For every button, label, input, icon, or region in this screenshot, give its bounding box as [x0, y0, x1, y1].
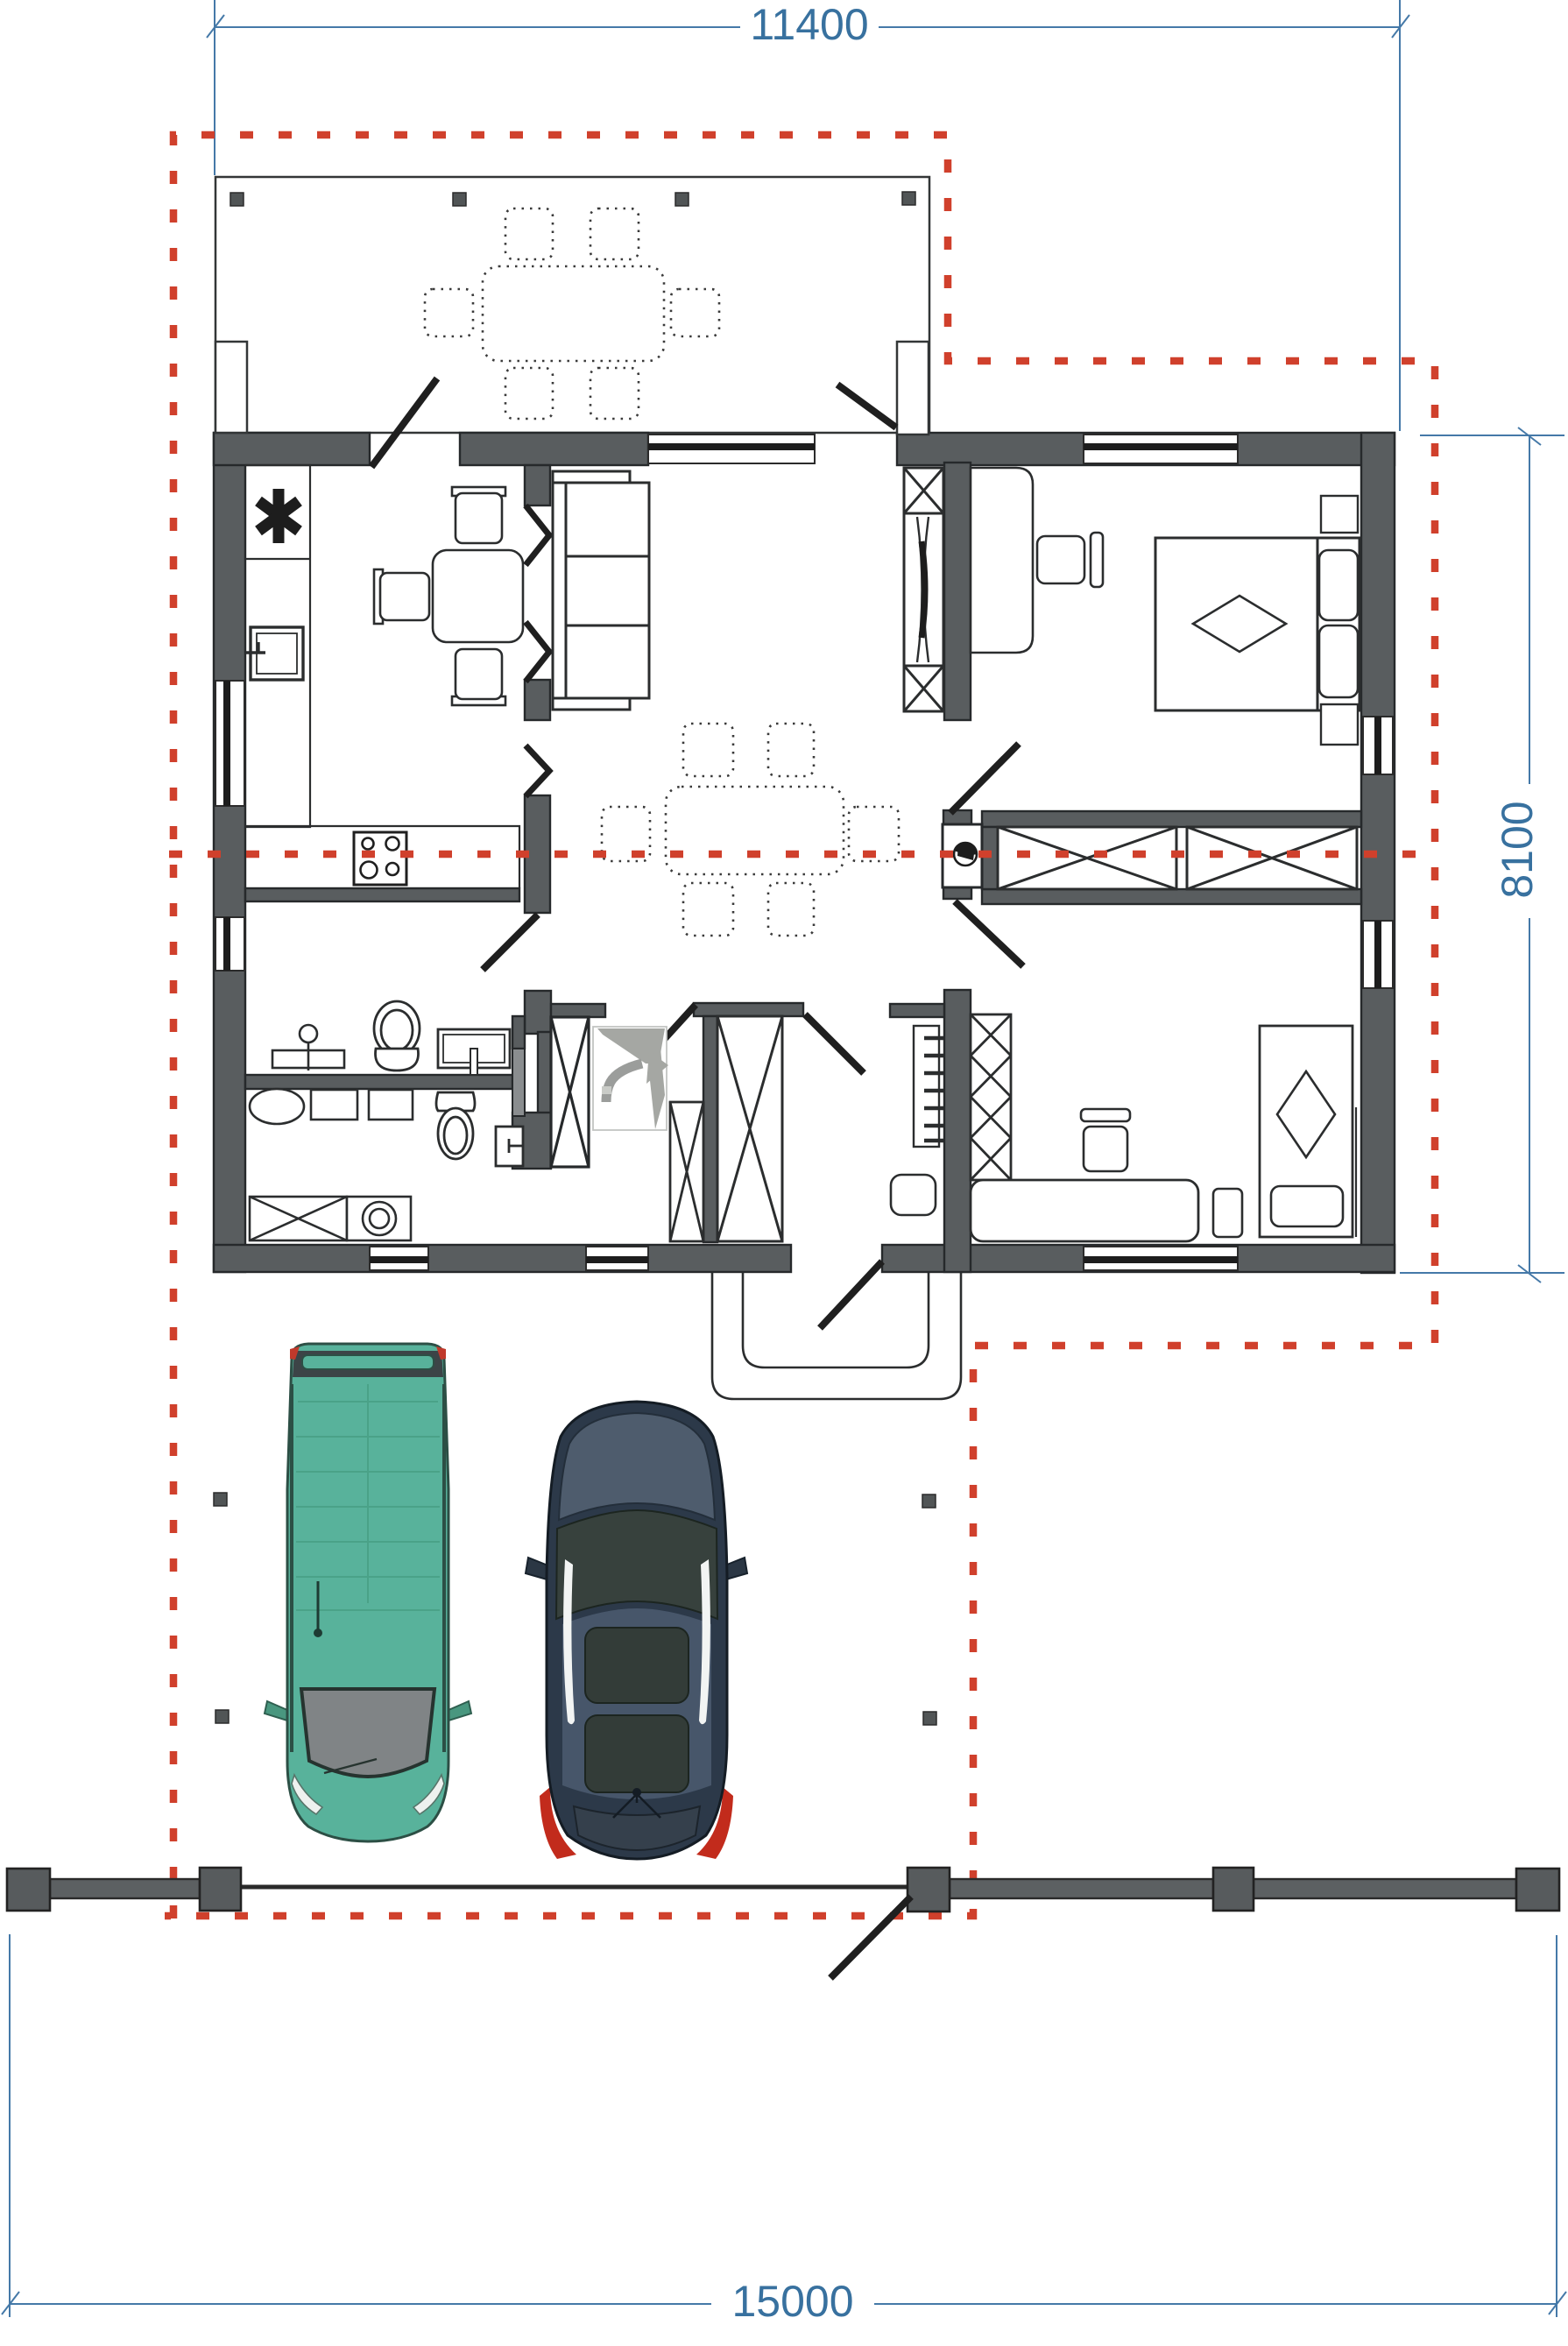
svg-text:15000: 15000: [731, 2277, 853, 2326]
svg-text:8100: 8100: [1493, 801, 1542, 898]
svg-text:11400: 11400: [750, 0, 868, 49]
